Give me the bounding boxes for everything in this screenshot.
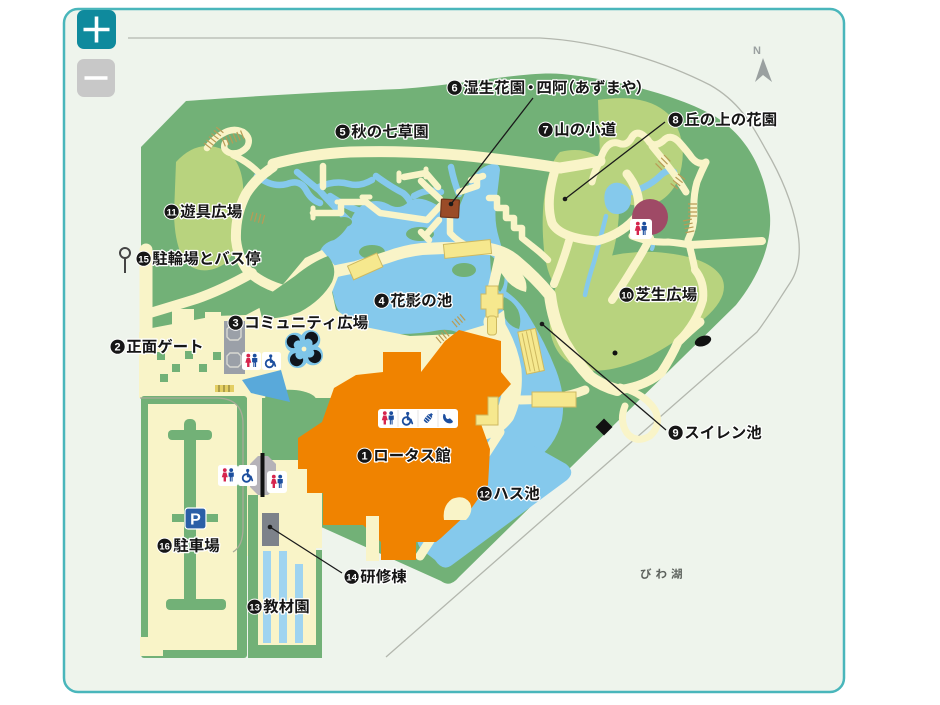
svg-text:2: 2 <box>115 341 121 353</box>
svg-text:11: 11 <box>167 207 178 218</box>
svg-text:N: N <box>753 45 761 57</box>
svg-text:10: 10 <box>621 290 632 301</box>
svg-text:9: 9 <box>673 427 679 439</box>
svg-text:3: 3 <box>233 317 239 329</box>
svg-text:7: 7 <box>543 124 549 136</box>
svg-text:16: 16 <box>159 541 170 552</box>
svg-text:8: 8 <box>673 114 679 126</box>
svg-text:P: P <box>190 512 201 529</box>
svg-text:4: 4 <box>379 295 386 307</box>
svg-text:15: 15 <box>138 254 149 265</box>
svg-text:12: 12 <box>479 489 490 500</box>
svg-text:14: 14 <box>346 572 357 583</box>
svg-text:6: 6 <box>452 82 458 94</box>
svg-text:5: 5 <box>340 126 346 138</box>
svg-text:13: 13 <box>249 602 260 613</box>
svg-text:1: 1 <box>362 450 368 462</box>
